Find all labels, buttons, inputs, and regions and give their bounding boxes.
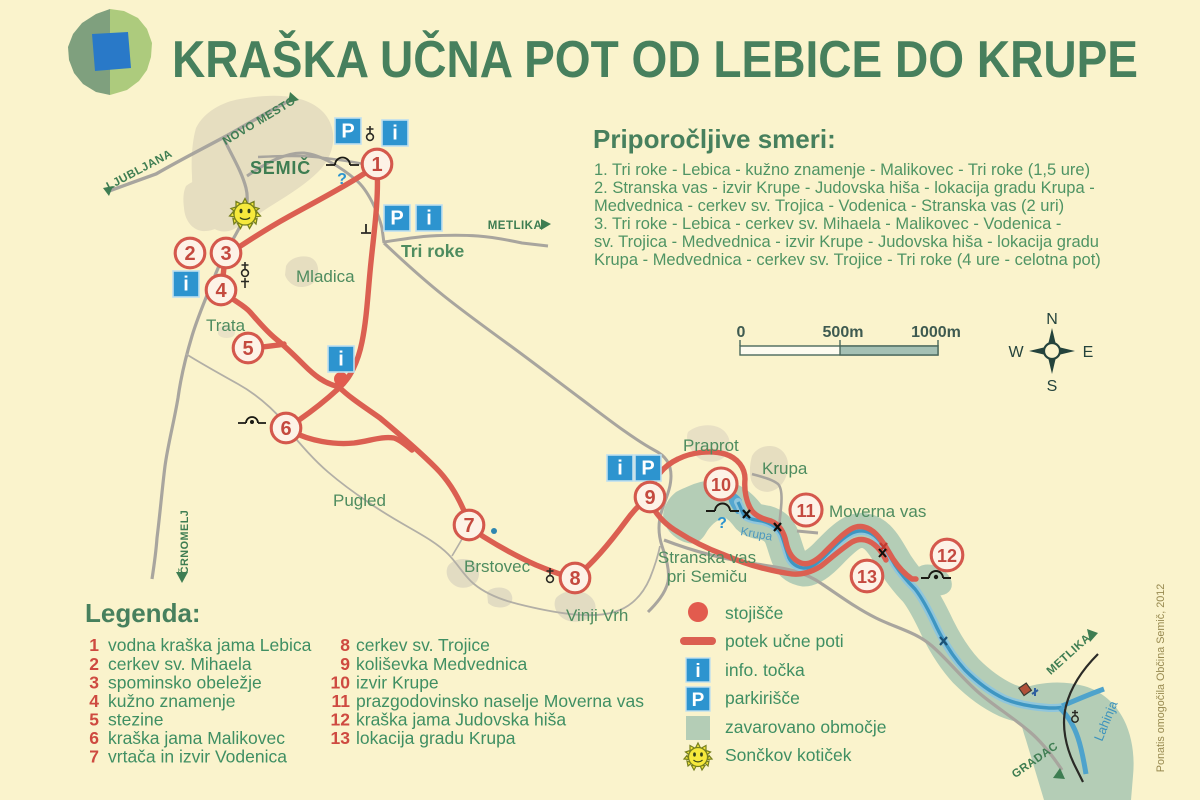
svg-text:spominsko obeležje: spominsko obeležje [108, 673, 262, 693]
svg-text:Sončkov kotiček: Sončkov kotiček [725, 745, 852, 765]
svg-text:13: 13 [857, 567, 877, 587]
svg-text:ČRNOMELJ: ČRNOMELJ [178, 510, 191, 575]
svg-text:Priporočljive smeri:: Priporočljive smeri: [593, 124, 836, 154]
svg-text:prazgodovinsko naselje Moverna: prazgodovinsko naselje Moverna vas [356, 691, 644, 711]
svg-text:potek učne poti: potek učne poti [725, 631, 844, 651]
svg-text:3. Tri roke - Lebica - cerkev: 3. Tri roke - Lebica - cerkev sv. Mihael… [594, 215, 1061, 233]
svg-text:Krupa: Krupa [762, 459, 808, 478]
svg-text:2: 2 [184, 243, 195, 265]
svg-text:zavarovano območje: zavarovano območje [725, 717, 886, 737]
svg-text:parkirišče: parkirišče [725, 688, 800, 708]
svg-text:kužno znamenje: kužno znamenje [108, 691, 235, 711]
svg-text:12: 12 [331, 710, 351, 730]
svg-text:P: P [341, 121, 354, 143]
svg-text:7: 7 [463, 515, 474, 537]
svg-text:W: W [1008, 344, 1024, 361]
svg-text:2. Stranska vas - izvir Krupe: 2. Stranska vas - izvir Krupe - Judovska… [594, 179, 1095, 197]
svg-text:Krupa - Medvednica - cerkev sv: Krupa - Medvednica - cerkev sv. Trojice … [594, 251, 1101, 269]
svg-text:kraška jama Malikovec: kraška jama Malikovec [108, 728, 285, 748]
svg-text:Tri roke: Tri roke [401, 241, 464, 261]
svg-text:i: i [183, 274, 189, 296]
svg-text:Moverna vas: Moverna vas [829, 502, 926, 521]
svg-text:9: 9 [340, 654, 350, 674]
svg-text:11: 11 [332, 691, 351, 711]
svg-text:izvir Krupe: izvir Krupe [356, 673, 439, 693]
svg-text:cerkev sv. Mihaela: cerkev sv. Mihaela [108, 654, 252, 674]
svg-text:vodna kraška jama Lebica: vodna kraška jama Lebica [108, 635, 312, 655]
svg-text:Medvednica - cerkev sv. Trojic: Medvednica - cerkev sv. Trojica - Vodeni… [594, 197, 1064, 215]
svg-text:1000m: 1000m [911, 324, 961, 341]
svg-text:7: 7 [89, 747, 99, 767]
svg-text:cerkev sv. Trojice: cerkev sv. Trojice [356, 635, 490, 655]
svg-text:SEMIČ: SEMIČ [250, 157, 311, 178]
svg-text:koliševka Medvednica: koliševka Medvednica [356, 654, 527, 674]
svg-text:S: S [1047, 378, 1058, 395]
svg-text:8: 8 [340, 635, 350, 655]
svg-text:1: 1 [371, 154, 382, 176]
svg-text:6: 6 [89, 728, 99, 748]
svg-text:10: 10 [711, 475, 731, 495]
svg-text:500m: 500m [823, 324, 864, 341]
svg-text:Praprot: Praprot [683, 436, 739, 455]
svg-text:stojišče: stojišče [725, 603, 783, 623]
svg-text:stezine: stezine [108, 710, 163, 730]
svg-text:11: 11 [796, 501, 815, 521]
svg-text:kraška jama Judovska hiša: kraška jama Judovska hiša [356, 710, 566, 730]
svg-text:0: 0 [737, 324, 746, 341]
svg-text:P: P [390, 208, 403, 230]
svg-text:pri Semiču: pri Semiču [667, 567, 747, 586]
svg-text:vrtača in izvir Vodenica: vrtača in izvir Vodenica [108, 747, 287, 767]
svg-text:13: 13 [331, 728, 351, 748]
svg-text:i: i [392, 123, 398, 145]
svg-text:Trata: Trata [206, 316, 246, 335]
svg-text:Ponatis omogočila Občina Semič: Ponatis omogočila Občina Semič, 2012 [1155, 584, 1167, 772]
svg-text:3: 3 [89, 673, 99, 693]
svg-text:?: ? [337, 171, 347, 188]
svg-text:i: i [426, 208, 432, 230]
svg-text:1: 1 [89, 635, 99, 655]
svg-text:Stranska vas: Stranska vas [658, 548, 756, 567]
svg-text:info. točka: info. točka [725, 660, 805, 680]
svg-text:2: 2 [89, 654, 99, 674]
svg-text:P: P [641, 458, 654, 480]
svg-text:1. Tri roke - Lebica - kužno z: 1. Tri roke - Lebica - kužno znamenje - … [594, 161, 1090, 179]
svg-text:Pugled: Pugled [333, 491, 386, 510]
svg-text:5: 5 [89, 710, 99, 730]
svg-text:Vinji Vrh: Vinji Vrh [566, 606, 628, 625]
svg-text:KRAŠKA UČNA POT OD LEBICE DO K: KRAŠKA UČNA POT OD LEBICE DO KRUPE [172, 30, 1138, 89]
svg-text:P: P [692, 690, 705, 711]
svg-text:lokacija gradu Krupa: lokacija gradu Krupa [356, 728, 516, 748]
svg-text:N: N [1046, 311, 1058, 328]
svg-text:E: E [1083, 344, 1094, 361]
svg-text:8: 8 [569, 568, 580, 590]
svg-text:Mladica: Mladica [296, 267, 355, 286]
svg-text:METLIKA: METLIKA [488, 220, 543, 232]
svg-text:5: 5 [242, 338, 253, 360]
svg-text:6: 6 [280, 418, 291, 440]
svg-text:3: 3 [220, 243, 231, 265]
svg-text:i: i [695, 661, 700, 682]
svg-text:i: i [617, 458, 623, 480]
svg-text:10: 10 [331, 673, 351, 693]
svg-text:4: 4 [89, 691, 99, 711]
svg-text:12: 12 [937, 546, 957, 566]
svg-text:9: 9 [644, 487, 655, 509]
svg-text:4: 4 [215, 280, 227, 302]
svg-text:?: ? [717, 515, 727, 532]
svg-text:sv. Trojica - Medvednica - izv: sv. Trojica - Medvednica - izvir Krupe -… [594, 233, 1099, 251]
svg-text:Brstovec: Brstovec [464, 557, 531, 576]
svg-text:Legenda:: Legenda: [85, 598, 201, 628]
svg-text:i: i [338, 349, 344, 371]
